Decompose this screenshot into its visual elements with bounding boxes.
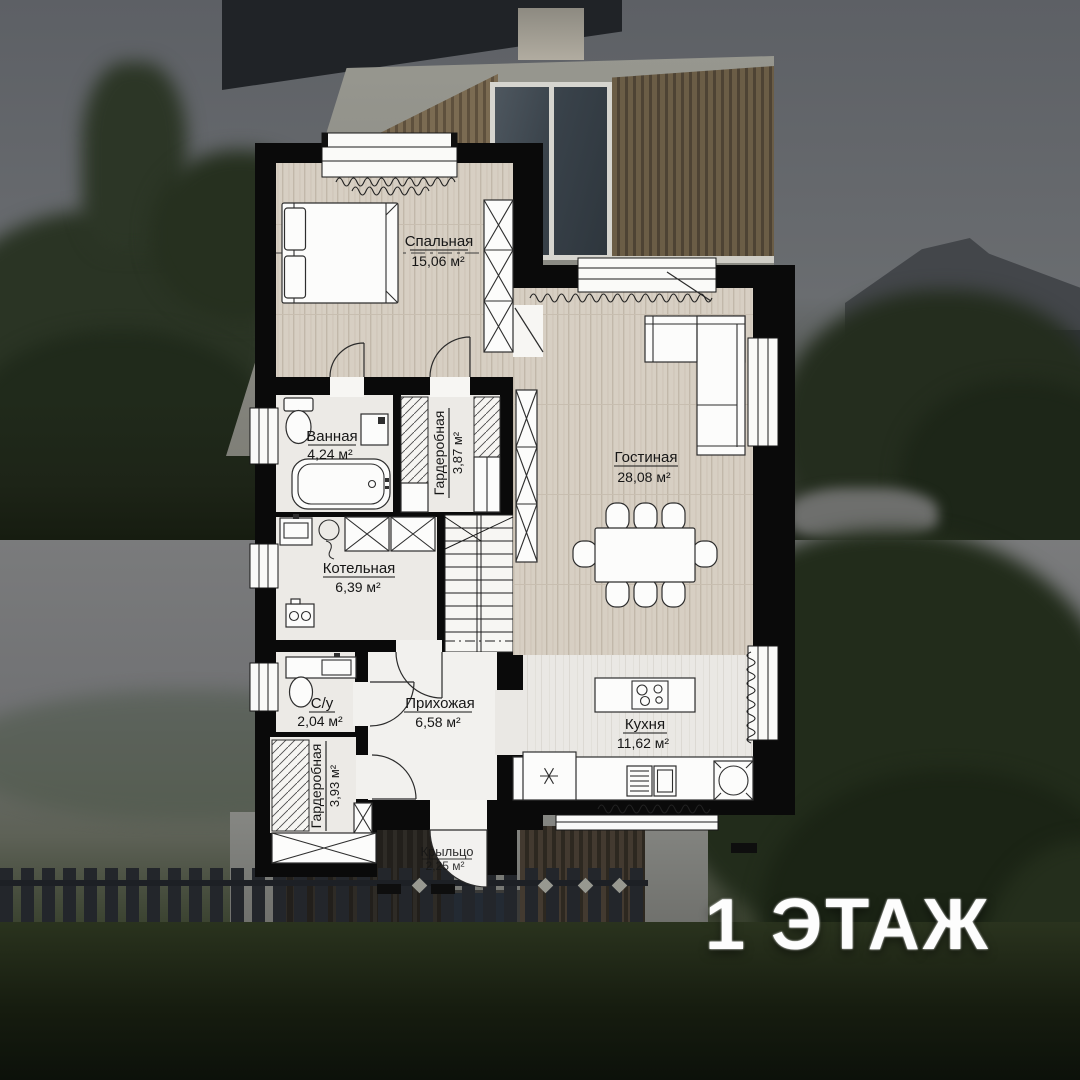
room-name-label: Гардеробная (308, 744, 324, 829)
shelving-icon (516, 390, 537, 562)
room-name-label: Спальная (405, 233, 474, 250)
room-area-label: 3,87 м² (450, 431, 465, 474)
chair-icon (634, 503, 657, 531)
room-area-label: 28,08 м² (617, 469, 671, 485)
vanity-icon (286, 653, 356, 678)
room-name-label: Кухня (625, 716, 665, 733)
room-name-label: Ванная (306, 428, 357, 445)
kitchen-opening (495, 690, 525, 755)
sink-icon (280, 514, 312, 545)
window (556, 815, 718, 830)
window (748, 338, 778, 446)
window (250, 408, 278, 464)
room-area-label: 11,62 м² (617, 735, 670, 751)
dishwasher-icon (627, 766, 652, 796)
room-area-label: 3,93 м² (327, 764, 342, 807)
room-name-label: С/у (311, 695, 334, 712)
chair-icon (606, 579, 629, 607)
washing-machine-icon (361, 414, 388, 445)
toilet-icon (290, 677, 313, 707)
window (578, 258, 716, 292)
room-name-label: Крыльцо (420, 844, 473, 859)
kitchen-sink-icon (714, 761, 753, 800)
room-area-label: 2,25 м² (426, 859, 465, 873)
stairs-floor (445, 515, 513, 652)
room-area-label: 2,04 м² (297, 713, 343, 729)
bathtub-icon (292, 459, 390, 509)
fridge-icon (523, 752, 576, 800)
room-name-label: Гостиная (615, 449, 678, 466)
dining-table-icon (595, 528, 695, 582)
chair-icon (693, 541, 717, 567)
oven-icon (654, 766, 676, 796)
room-name-label: Гардеробная (431, 411, 447, 496)
room-area-label: 15,06 м² (411, 253, 465, 269)
poster-canvas: Спальная 15,06 м² Ванная 4,24 м² Гардеро… (0, 0, 1080, 1080)
room-name-label: Котельная (323, 560, 396, 577)
chair-icon (662, 503, 685, 531)
island-cooktop-icon (595, 678, 695, 712)
floor-title: 1 ЭТАЖ (705, 884, 1025, 966)
room-area-label: 6,39 м² (335, 579, 381, 595)
chair-icon (634, 579, 657, 607)
window (250, 663, 278, 711)
marker-chip (377, 884, 401, 894)
window (322, 133, 457, 177)
window (250, 544, 278, 588)
marker-chip (431, 884, 455, 894)
chair-icon (606, 503, 629, 531)
room-area-label: 4,24 м² (307, 446, 353, 462)
chair-icon (573, 541, 597, 567)
chair-icon (662, 579, 685, 607)
room-name-label: Прихожая (405, 695, 475, 712)
marker-chip (731, 843, 757, 853)
room-area-label: 6,58 м² (415, 714, 461, 730)
wardrobe-icon (484, 200, 513, 352)
